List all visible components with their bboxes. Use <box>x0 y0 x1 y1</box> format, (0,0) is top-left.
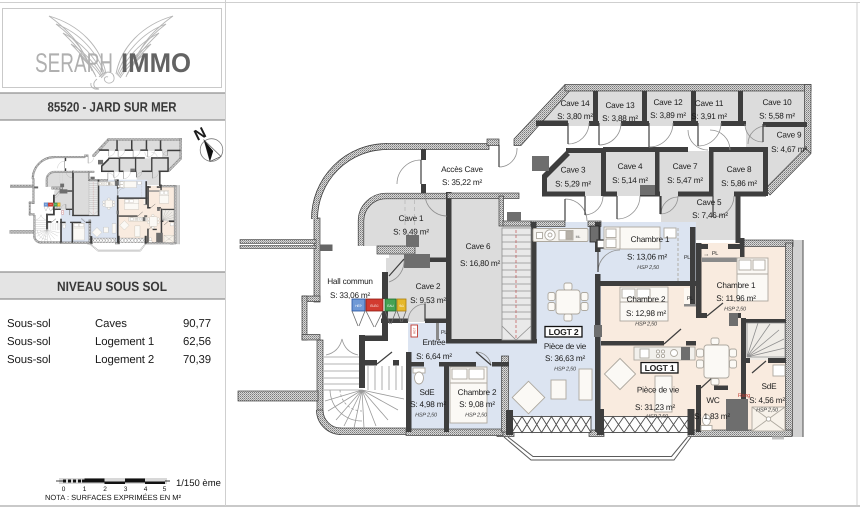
svg-text:SG: SG <box>399 304 404 308</box>
svg-text:S: 4,67 m²: S: 4,67 m² <box>771 145 807 154</box>
svg-text:S: 4,98 m²: S: 4,98 m² <box>410 400 446 409</box>
svg-text:S: 3,88 m²: S: 3,88 m² <box>602 114 638 123</box>
svg-text:Caves: Caves <box>95 318 127 330</box>
svg-text:Logement 2: Logement 2 <box>95 354 154 366</box>
svg-text:S: 35,22 m²: S: 35,22 m² <box>442 178 483 187</box>
svg-text:S: 31,23 m²: S: 31,23 m² <box>635 403 676 412</box>
svg-text:Cave 11: Cave 11 <box>695 99 724 108</box>
svg-text:Entrée: Entrée <box>423 338 447 347</box>
svg-text:Pièce de vie: Pièce de vie <box>637 386 680 395</box>
svg-text:Cave 6: Cave 6 <box>466 242 491 251</box>
svg-text:Accès Cave: Accès Cave <box>441 165 483 174</box>
svg-text:Cave 5: Cave 5 <box>697 198 722 207</box>
svg-text:S: 13,06 m²: S: 13,06 m² <box>627 253 668 262</box>
svg-text:NIVEAU SOUS SOL: NIVEAU SOUS SOL <box>57 279 167 294</box>
svg-text:S: 11,96 m²: S: 11,96 m² <box>716 294 756 303</box>
svg-text:Pièce de vie: Pièce de vie <box>544 342 587 351</box>
svg-text:S: 5,29 m²: S: 5,29 m² <box>555 180 591 189</box>
svg-text:Cave 12: Cave 12 <box>653 98 683 107</box>
svg-text:S: 33,06 m²: S: 33,06 m² <box>330 291 371 300</box>
svg-text:1: 1 <box>83 486 87 493</box>
svg-text:4: 4 <box>144 486 148 493</box>
svg-text:NOTA : SURFACES EXPRIMÉES EN M: NOTA : SURFACES EXPRIMÉES EN M² <box>45 493 182 502</box>
svg-text:HSP 2,50: HSP 2,50 <box>756 408 779 414</box>
svg-text:S: 9,53 m²: S: 9,53 m² <box>410 296 446 305</box>
svg-text:90,77: 90,77 <box>183 318 211 330</box>
svg-text:HSP 2,50: HSP 2,50 <box>465 413 488 419</box>
svg-text:S: 4,56 m²: S: 4,56 m² <box>749 396 785 405</box>
svg-text:S: 16,80 m²: S: 16,80 m² <box>460 259 501 268</box>
svg-text:HSP 2,50: HSP 2,50 <box>635 322 658 328</box>
svg-text:Chambre 1: Chambre 1 <box>631 235 670 244</box>
svg-text:WC: WC <box>706 396 720 405</box>
svg-text:S: 5,14 m²: S: 5,14 m² <box>612 176 648 185</box>
svg-text:ELEC: ELEC <box>370 304 379 308</box>
svg-text:HEP: HEP <box>355 304 362 308</box>
svg-text:ML: ML <box>576 235 581 239</box>
svg-text:S: 3,91 m²: S: 3,91 m² <box>691 112 727 121</box>
svg-text:S: 7,46 m²: S: 7,46 m² <box>692 211 728 220</box>
svg-text:Logement 1: Logement 1 <box>95 336 154 348</box>
svg-text:HSP 2,50: HSP 2,50 <box>415 413 438 419</box>
svg-text:Cave 14: Cave 14 <box>560 99 590 108</box>
svg-text:Sous-sol: Sous-sol <box>7 318 51 330</box>
svg-text:Chambre 2: Chambre 2 <box>627 295 666 304</box>
svg-text:PL: PL <box>684 255 690 261</box>
svg-text:HSP 2,50: HSP 2,50 <box>554 367 577 373</box>
svg-text:Cave 1: Cave 1 <box>399 214 424 223</box>
svg-text:IMMO: IMMO <box>121 48 191 78</box>
svg-text:S: 5,47 m²: S: 5,47 m² <box>667 176 703 185</box>
svg-text:62,56: 62,56 <box>183 336 211 348</box>
svg-text:PL: PL <box>441 330 447 336</box>
svg-text:HSP 2,50: HSP 2,50 <box>637 265 660 271</box>
svg-text:1/150 ème: 1/150 ème <box>176 478 221 489</box>
svg-text:EAU: EAU <box>387 304 394 308</box>
svg-text:S: 9,49 m²: S: 9,49 m² <box>393 228 429 237</box>
svg-text:Chambre 1: Chambre 1 <box>717 281 756 290</box>
svg-text:Hall commun: Hall commun <box>327 277 373 286</box>
svg-text:Cave 13: Cave 13 <box>605 101 635 110</box>
svg-text:S: 9,08 m²: S: 9,08 m² <box>459 400 495 409</box>
svg-text:85520 - JARD SUR MER: 85520 - JARD SUR MER <box>48 100 177 115</box>
svg-text:Chambre 2: Chambre 2 <box>458 388 497 397</box>
svg-text:HSP 2,50: HSP 2,50 <box>724 307 747 313</box>
svg-text:S: 5,86 m²: S: 5,86 m² <box>721 179 757 188</box>
svg-text:LOGT 2: LOGT 2 <box>549 327 579 337</box>
svg-text:5: 5 <box>163 486 167 493</box>
svg-text:Cave 9: Cave 9 <box>777 131 802 140</box>
svg-text:S: 36,63 m²: S: 36,63 m² <box>545 354 586 363</box>
svg-text:S: 5,58 m²: S: 5,58 m² <box>759 112 795 121</box>
svg-text:S: 3,89 m²: S: 3,89 m² <box>650 111 686 120</box>
svg-text:→: → <box>703 252 709 258</box>
svg-text:RGT: RGT <box>413 328 417 335</box>
svg-text:PL: PL <box>687 296 693 302</box>
svg-text:Sous-sol: Sous-sol <box>7 354 51 366</box>
svg-text:Cave 10: Cave 10 <box>762 98 792 107</box>
svg-text:Cave 3: Cave 3 <box>561 166 586 175</box>
svg-text:Sous-sol: Sous-sol <box>7 336 51 348</box>
svg-text:SdE: SdE <box>762 382 778 391</box>
svg-text:LOGT 1: LOGT 1 <box>645 363 675 373</box>
svg-text:Rang: Rang <box>738 393 750 399</box>
svg-text:S: 1,83 m²: S: 1,83 m² <box>694 412 730 421</box>
svg-text:PL: PL <box>712 251 718 257</box>
svg-text:3: 3 <box>124 486 128 493</box>
svg-text:S: 6,64 m²: S: 6,64 m² <box>416 352 452 361</box>
svg-text:Cave 8: Cave 8 <box>727 165 752 174</box>
svg-text:S: 12,98 m²: S: 12,98 m² <box>626 309 667 318</box>
svg-text:Cave 2: Cave 2 <box>416 282 441 291</box>
svg-text:70,39: 70,39 <box>183 354 211 366</box>
svg-text:SdE: SdE <box>420 388 436 397</box>
svg-text:2: 2 <box>103 486 107 493</box>
svg-text:S: 3,80 m²: S: 3,80 m² <box>557 112 593 121</box>
svg-text:HSP 2,50: HSP 2,50 <box>646 414 669 420</box>
svg-text:Cave 7: Cave 7 <box>673 162 698 171</box>
svg-text:Cave 4: Cave 4 <box>618 162 643 171</box>
svg-text:0: 0 <box>62 486 66 493</box>
svg-text:SERAPH: SERAPH <box>35 48 113 78</box>
